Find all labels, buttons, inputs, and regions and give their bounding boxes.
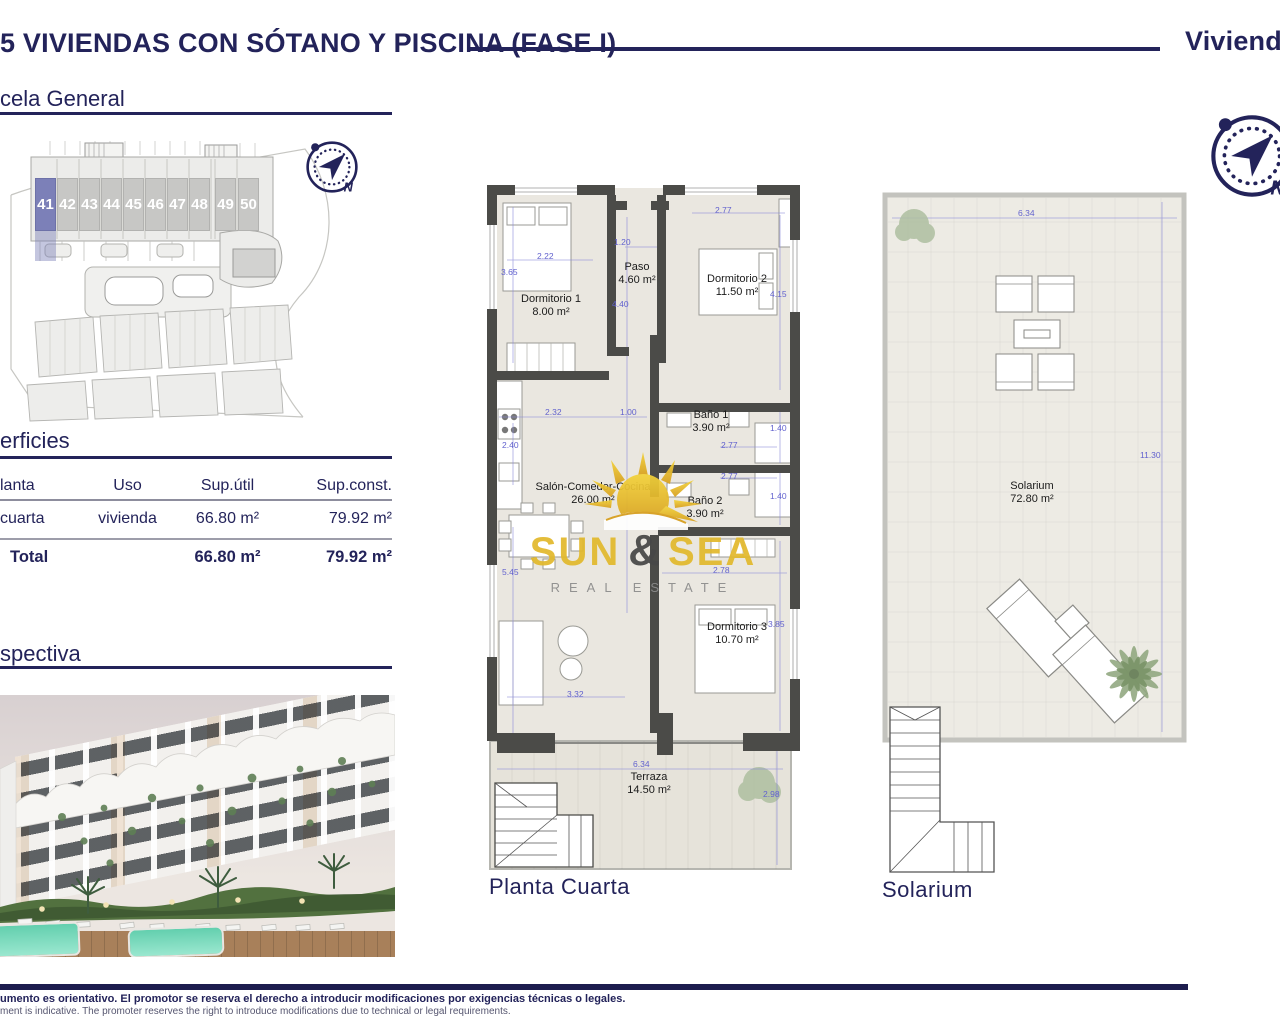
room-label-solarium: Solarium72.80 m² bbox=[977, 480, 1087, 506]
cell-sup-const: 79.92 m² bbox=[280, 510, 392, 528]
table-row: cuarta vivienda 66.80 m² 79.92 m² bbox=[0, 510, 392, 528]
total-label: Total bbox=[0, 548, 80, 567]
perspective-render-image bbox=[0, 695, 395, 957]
dimension-label: 2.77 bbox=[715, 205, 732, 215]
dimension-label: 3.85 bbox=[768, 619, 785, 629]
solarium-plan: Solarium72.80 m² 6.34 11.30 bbox=[882, 192, 1187, 905]
dimension-label: 11.30 bbox=[1140, 450, 1161, 460]
pool-center bbox=[128, 925, 225, 957]
total-sup-const: 79.92 m² bbox=[280, 548, 392, 567]
superficies-heading: erficies bbox=[0, 428, 70, 454]
table-total-rule bbox=[0, 538, 392, 540]
site-unit-45: 45 bbox=[123, 178, 144, 231]
compass-arrow-icon bbox=[319, 154, 345, 180]
pool-left bbox=[0, 921, 81, 957]
perspective-overlay bbox=[0, 695, 395, 957]
dimension-label: 1.40 bbox=[770, 491, 787, 501]
dimension-label: 2.22 bbox=[537, 251, 554, 261]
col-sup-util: Sup.útil bbox=[175, 477, 280, 495]
col-sup-const: Sup.const. bbox=[280, 477, 392, 495]
table-header-rule bbox=[0, 499, 392, 501]
col-uso: Uso bbox=[80, 477, 175, 495]
surfaces-table: lanta Uso Sup.útil Sup.const. cuarta viv… bbox=[0, 477, 392, 567]
solarium-caption: Solarium bbox=[882, 877, 973, 903]
perspectiva-rule bbox=[0, 666, 392, 669]
dimension-label: 6.34 bbox=[633, 759, 650, 769]
page-title: 5 VIVIENDAS CON SÓTANO Y PISCINA (FASE I… bbox=[0, 28, 616, 59]
dimension-label: 1.00 bbox=[620, 407, 637, 417]
room-label-terraza: Terraza14.50 m² bbox=[599, 771, 699, 797]
dimension-label: 1.20 bbox=[614, 237, 631, 247]
surfaces-table-header: lanta Uso Sup.útil Sup.const. bbox=[0, 477, 392, 495]
dimension-label: 2.77 bbox=[721, 440, 738, 450]
room-label-bano-1: Baño 13.90 m² bbox=[671, 409, 751, 435]
room-label-dormitorio-1: Dormitorio 18.00 m² bbox=[501, 293, 601, 319]
cell-uso: vivienda bbox=[80, 510, 175, 528]
header-right-label: Viviendas bbox=[1185, 26, 1280, 56]
compass-arrow-icon bbox=[1231, 135, 1273, 177]
site-unit-43: 43 bbox=[79, 178, 100, 231]
dimension-label: 2.77 bbox=[721, 471, 738, 481]
cell-planta: cuarta bbox=[0, 510, 80, 528]
highlight-unit-tail bbox=[35, 231, 56, 261]
site-unit-50: 50 bbox=[238, 178, 259, 231]
room-label-paso: Paso4.60 m² bbox=[605, 261, 669, 287]
compass-dot bbox=[311, 143, 319, 151]
table-total-row: Total 66.80 m² 79.92 m² bbox=[0, 548, 392, 567]
parcela-heading: cela General bbox=[0, 86, 125, 112]
plan-document-page: 5 VIVIENDAS CON SÓTANO Y PISCINA (FASE I… bbox=[0, 0, 1280, 1024]
disclaimer-en: ment is indicative. The promoter reserve… bbox=[0, 1006, 511, 1017]
dimension-label: 2.98 bbox=[763, 789, 780, 799]
solarium-drawing bbox=[882, 192, 1187, 905]
footer-bar bbox=[0, 984, 1188, 990]
dimension-label: 1.40 bbox=[770, 423, 787, 433]
dimension-label: 4.15 bbox=[770, 289, 787, 299]
floorplan-planta-cuarta: Dormitorio 18.00 m² Paso4.60 m² Dormitor… bbox=[487, 185, 800, 875]
room-label-bano-2: Baño 23.90 m² bbox=[665, 495, 745, 521]
site-unit-48: 48 bbox=[189, 178, 210, 231]
dimension-label: 2.40 bbox=[502, 440, 519, 450]
site-unit-42: 42 bbox=[57, 178, 78, 231]
site-unit-44: 44 bbox=[101, 178, 122, 231]
dimension-label: 6.34 bbox=[1018, 208, 1035, 218]
total-sup-util: 66.80 m² bbox=[175, 548, 280, 567]
superficies-rule bbox=[0, 456, 392, 459]
dimension-label: 5.45 bbox=[502, 567, 519, 577]
dimension-label: 4.40 bbox=[612, 299, 629, 309]
site-unit-47: 47 bbox=[167, 178, 188, 231]
dimension-label: 2.78 bbox=[713, 565, 730, 575]
dimension-label: 3.65 bbox=[501, 267, 518, 277]
disclaimer-es: umento es orientativo. El promotor se re… bbox=[0, 993, 625, 1005]
compass-icon: N bbox=[303, 138, 361, 196]
compass-north-label: N bbox=[1270, 178, 1280, 200]
col-planta: lanta bbox=[0, 477, 80, 495]
header-right-label-wrap: Viviendas bbox=[1185, 26, 1280, 62]
floorplan-caption: Planta Cuarta bbox=[489, 874, 630, 900]
site-unit-46: 46 bbox=[145, 178, 166, 231]
site-unit-49: 49 bbox=[215, 178, 236, 231]
room-label-salon-comedor-cocina: Salón-Comedor-Cocina26.00 m² bbox=[509, 481, 677, 507]
cell-sup-util: 66.80 m² bbox=[175, 510, 280, 528]
site-unit-41: 41 bbox=[35, 178, 56, 231]
compass-dot bbox=[1219, 118, 1232, 131]
perspectiva-heading: spectiva bbox=[0, 641, 81, 667]
dimension-label: 2.32 bbox=[545, 407, 562, 417]
compass-icon: N bbox=[1206, 110, 1280, 202]
dimension-label: 3.32 bbox=[567, 689, 584, 699]
parcela-rule bbox=[0, 112, 392, 115]
title-rule bbox=[468, 47, 1160, 51]
compass-north-label: N bbox=[344, 179, 354, 194]
